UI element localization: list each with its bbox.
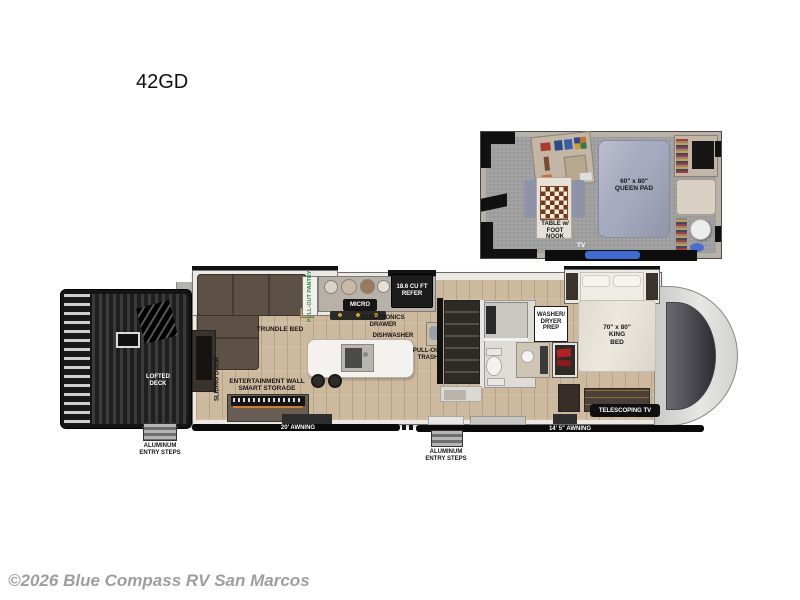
pillow <box>613 275 641 287</box>
toilet <box>486 356 502 376</box>
loft-tv-cabinet <box>692 141 714 169</box>
main-entry-steps-label: ALUMINUM ENTRY STEPS <box>414 449 478 462</box>
nook-bench <box>572 180 585 218</box>
telescoping-tv-label: TELESCOPING TV <box>590 408 660 415</box>
pantry-label: PULL-OUT PANTRY <box>302 276 318 316</box>
plate <box>377 280 390 293</box>
sink-faucet <box>363 352 368 357</box>
loft-chair <box>676 179 716 215</box>
storage-bay <box>282 414 332 424</box>
fireplace-grill <box>233 398 303 402</box>
loft-book-shelf <box>676 218 687 250</box>
game-piece <box>574 137 587 150</box>
deck-entry-steps-label: ALUMINUM ENTRY STEPS <box>128 443 192 456</box>
awning-bracket <box>409 425 413 430</box>
table-foot-nook-label: TABLE w/ FOOT NOOK <box>536 221 574 241</box>
awning-bracket <box>402 425 406 430</box>
loft-wall-segment <box>481 249 537 258</box>
main-entry-steps <box>431 430 463 447</box>
loft-wall-notch <box>481 222 493 250</box>
loft-wall-corner <box>481 132 491 168</box>
floorplan-title: 42GD <box>136 72 188 92</box>
toilet-tank <box>486 348 502 356</box>
fireplace-flame <box>233 406 303 408</box>
sink-basin <box>345 348 362 368</box>
bar-stool <box>311 374 325 388</box>
shower-fixture <box>486 306 496 334</box>
loft-tv-screen <box>585 251 640 259</box>
refrigerator-label: 18.6 CU FT REFER <box>391 284 433 297</box>
queen-pad-label: 60" x 80" QUEEN PAD <box>600 178 668 193</box>
microwave-label: MICRO <box>343 302 377 309</box>
loft-stool <box>690 219 711 240</box>
rear-awning-label: 14' 5" AWNING <box>530 426 610 433</box>
nightstand <box>646 273 658 300</box>
entertainment-wall-label: ENTERTAINMENT WALL SMART STORAGE <box>228 378 306 393</box>
storage-bay <box>553 414 577 424</box>
bedroom-cabinet <box>558 384 580 412</box>
loft-wall-notch <box>715 141 721 157</box>
checkerboard-tabletop <box>540 186 568 220</box>
plate <box>341 279 357 295</box>
loft-tv-label: TV <box>570 242 592 249</box>
game-piece <box>540 142 551 151</box>
washer-dryer-label: WASHER/ DRYER PREP <box>534 312 568 332</box>
front-awning-label: 20' AWNING <box>258 425 338 432</box>
nightstand <box>566 273 578 300</box>
bath-cabinet <box>487 378 505 386</box>
wardrobe-clothes <box>557 348 572 357</box>
lofted-deck-label: LOFTED DECK <box>134 374 182 387</box>
game-piece <box>544 156 550 170</box>
king-bed-label: 70" x 80" KING BED <box>588 324 646 346</box>
deck-window <box>116 332 140 348</box>
entry-door-opening <box>428 416 464 425</box>
plate <box>324 280 338 294</box>
game-piece <box>554 140 563 151</box>
floorplan-page: 42GD TABLE w/ FOOT NOOK 60" x 80" QUEEN … <box>0 0 800 600</box>
plate <box>360 279 375 294</box>
wardrobe-clothes <box>557 359 571 366</box>
pillow <box>582 275 610 287</box>
stair-railing <box>437 298 443 384</box>
shower-glass <box>484 338 528 341</box>
trundle-bed-label: TRUNDLE BED <box>240 326 320 333</box>
dealer-watermark: ©2026 Blue Compass RV San Marcos <box>8 572 310 589</box>
electronics-drawer-label: ELECTRONICS DRAWER <box>360 315 406 328</box>
entry-mat <box>444 390 466 400</box>
tv-cabinet-screen <box>196 336 212 380</box>
sofa-trundle-bed <box>197 274 307 316</box>
vanity-counter <box>540 346 548 374</box>
sliding-door-label: SLIDING DOOR <box>213 350 223 408</box>
deck-railing <box>64 294 90 424</box>
loft-stairs <box>444 300 480 384</box>
game-piece <box>564 139 573 150</box>
bar-stool <box>328 374 342 388</box>
storage-bay <box>470 416 526 425</box>
loft-wall-notch <box>715 226 721 242</box>
vanity-sink <box>521 350 534 363</box>
deck-entry-steps <box>143 423 177 441</box>
loft-book-shelf <box>676 139 688 173</box>
